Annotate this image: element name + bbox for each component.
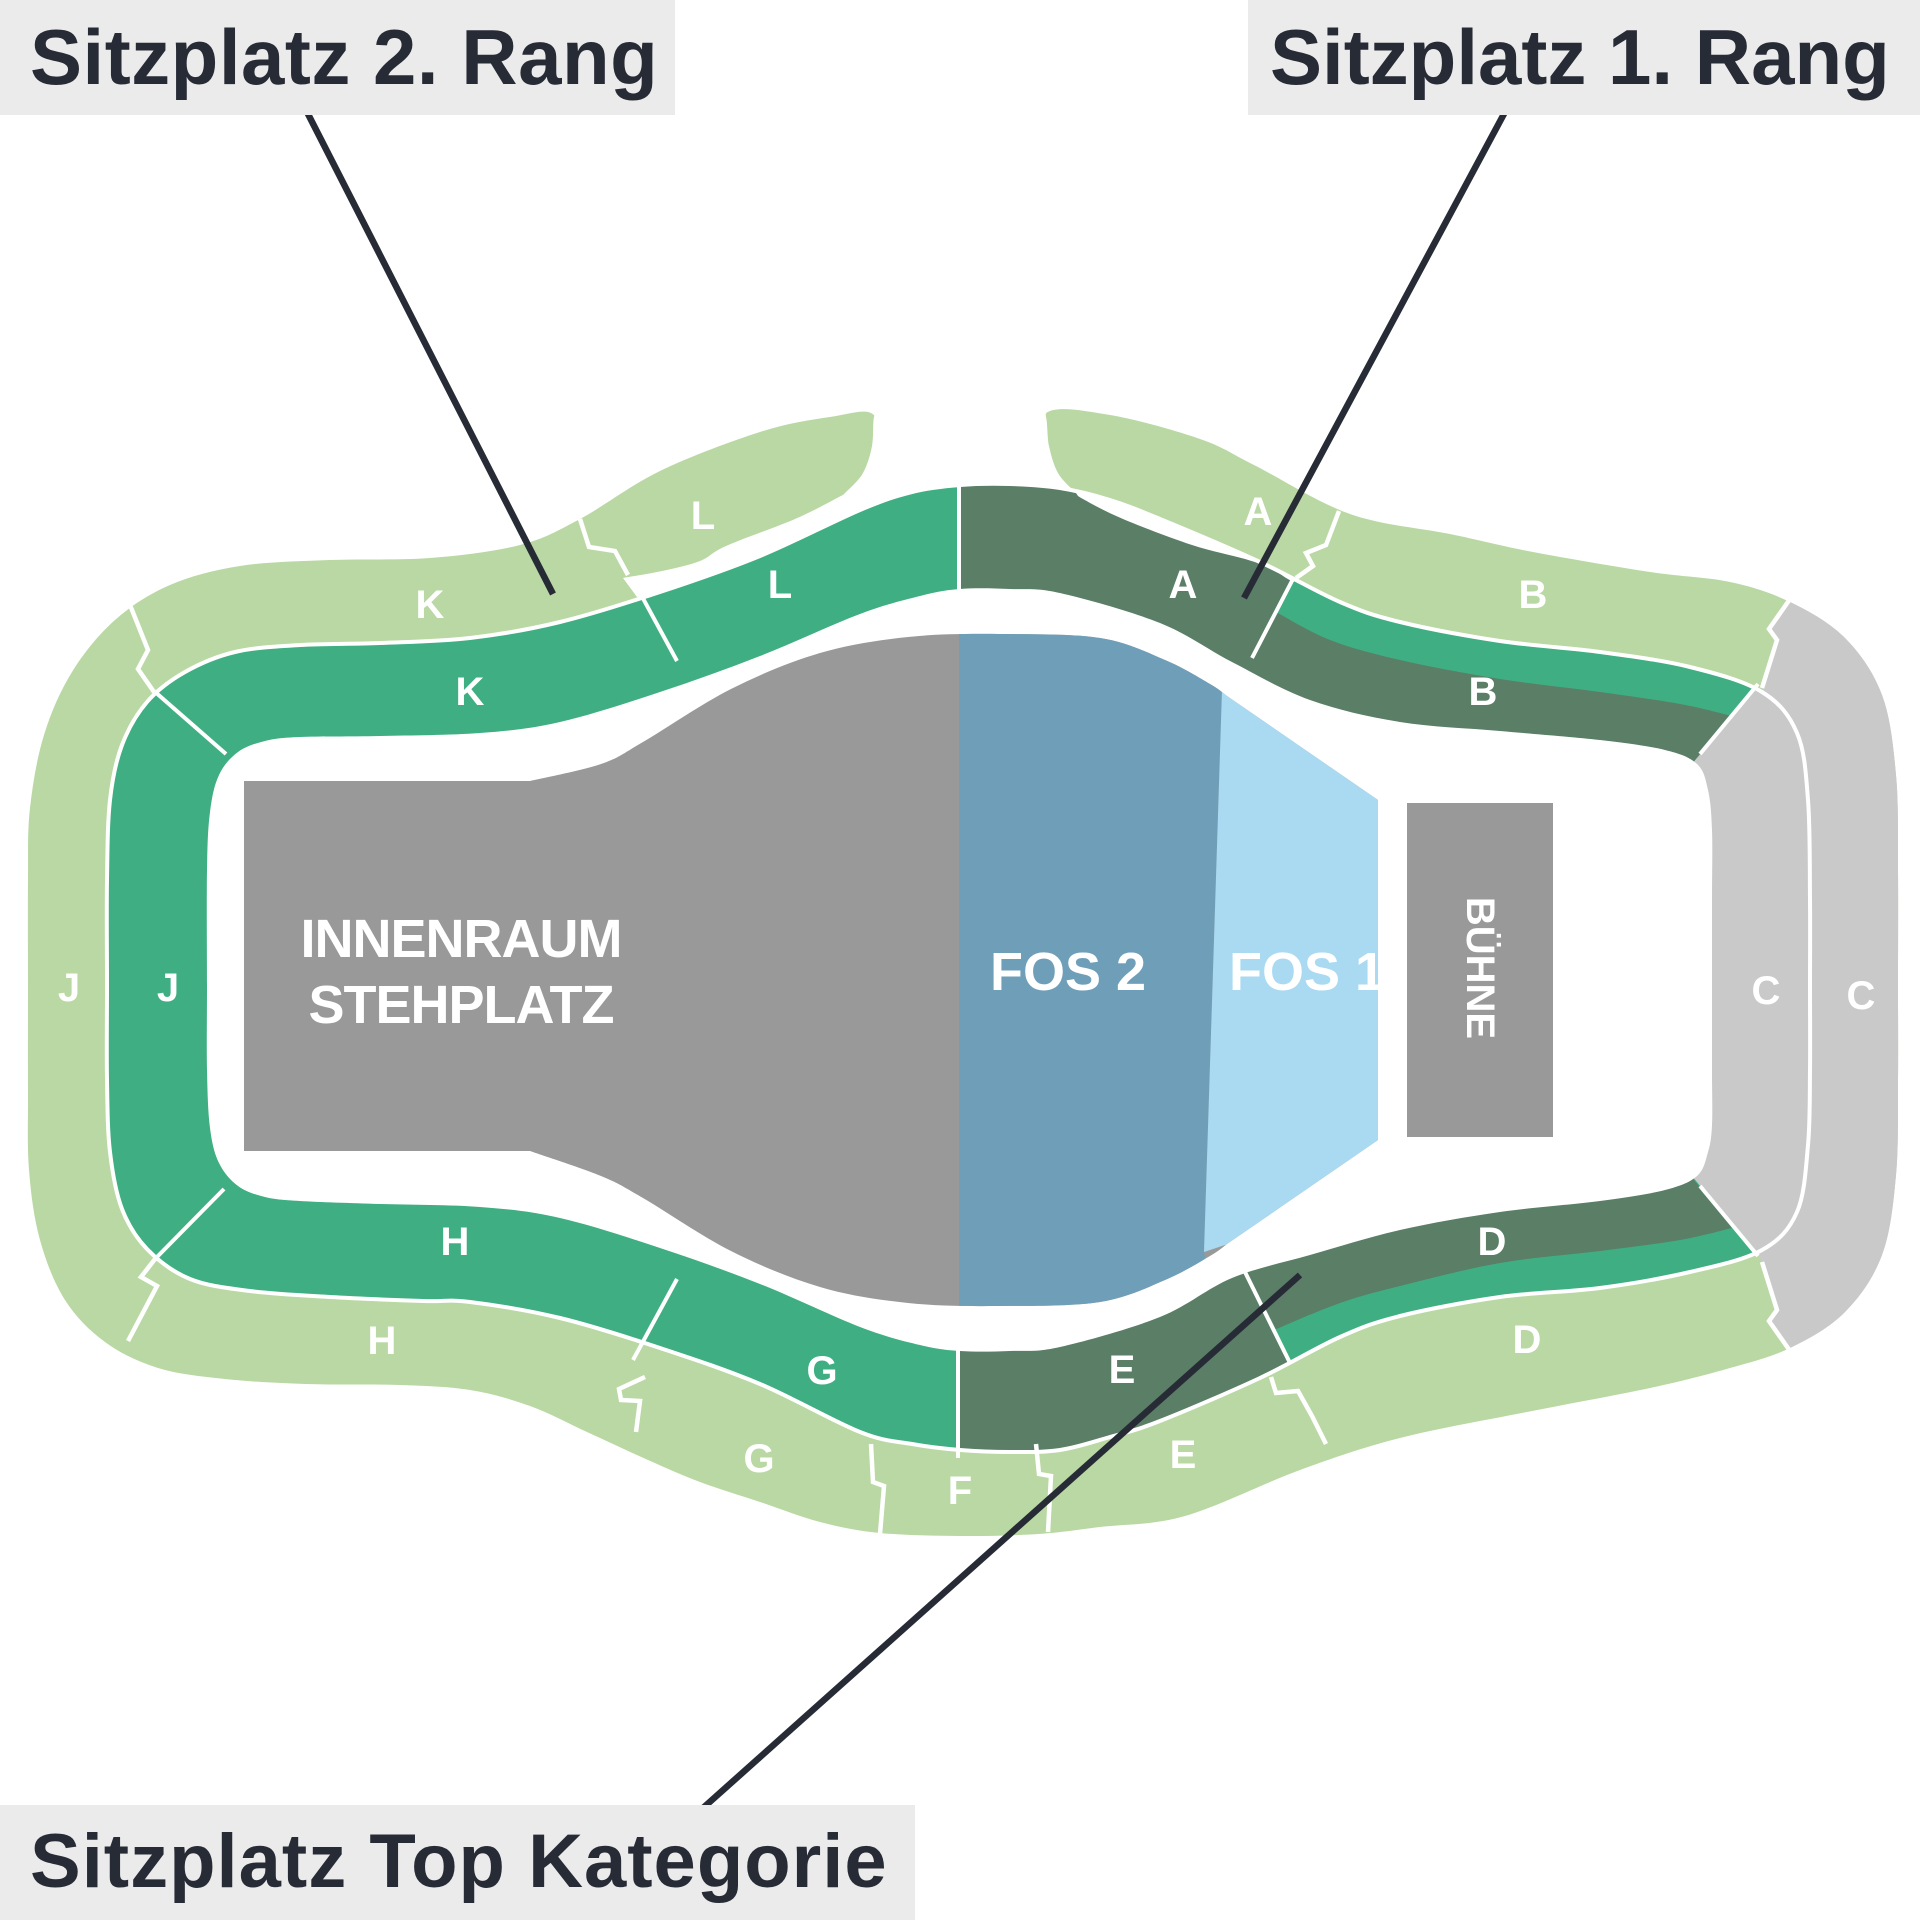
svg-text:F: F xyxy=(948,1469,972,1513)
svg-text:BÜHNE: BÜHNE xyxy=(1458,897,1503,1039)
svg-text:Sitzplatz 2. Rang: Sitzplatz 2. Rang xyxy=(30,13,658,101)
svg-text:J: J xyxy=(58,966,80,1010)
svg-text:H: H xyxy=(441,1220,470,1264)
svg-text:K: K xyxy=(416,583,445,627)
svg-text:L: L xyxy=(768,563,792,607)
svg-text:A: A xyxy=(1169,563,1198,607)
svg-text:A: A xyxy=(1244,490,1273,534)
svg-text:B: B xyxy=(1469,670,1498,714)
svg-text:STEHPLATZ: STEHPLATZ xyxy=(309,975,614,1035)
svg-text:FOS 2: FOS 2 xyxy=(990,942,1146,1002)
svg-text:G: G xyxy=(806,1349,837,1393)
svg-text:FOS 1: FOS 1 xyxy=(1229,942,1385,1002)
svg-text:E: E xyxy=(1170,1433,1197,1477)
svg-text:INNENRAUM: INNENRAUM xyxy=(301,909,622,969)
svg-text:J: J xyxy=(157,966,179,1010)
svg-text:Sitzplatz 1. Rang: Sitzplatz 1. Rang xyxy=(1270,13,1890,101)
svg-text:E: E xyxy=(1109,1348,1136,1392)
svg-text:H: H xyxy=(368,1319,397,1363)
svg-text:G: G xyxy=(743,1437,774,1481)
svg-text:C: C xyxy=(1752,969,1781,1013)
svg-text:Sitzplatz Top Kategorie: Sitzplatz Top Kategorie xyxy=(30,1819,888,1904)
svg-text:D: D xyxy=(1478,1220,1507,1264)
svg-text:D: D xyxy=(1513,1318,1542,1362)
svg-text:K: K xyxy=(456,670,485,714)
svg-text:B: B xyxy=(1519,573,1548,617)
svg-text:C: C xyxy=(1847,974,1876,1018)
svg-text:L: L xyxy=(691,494,715,538)
